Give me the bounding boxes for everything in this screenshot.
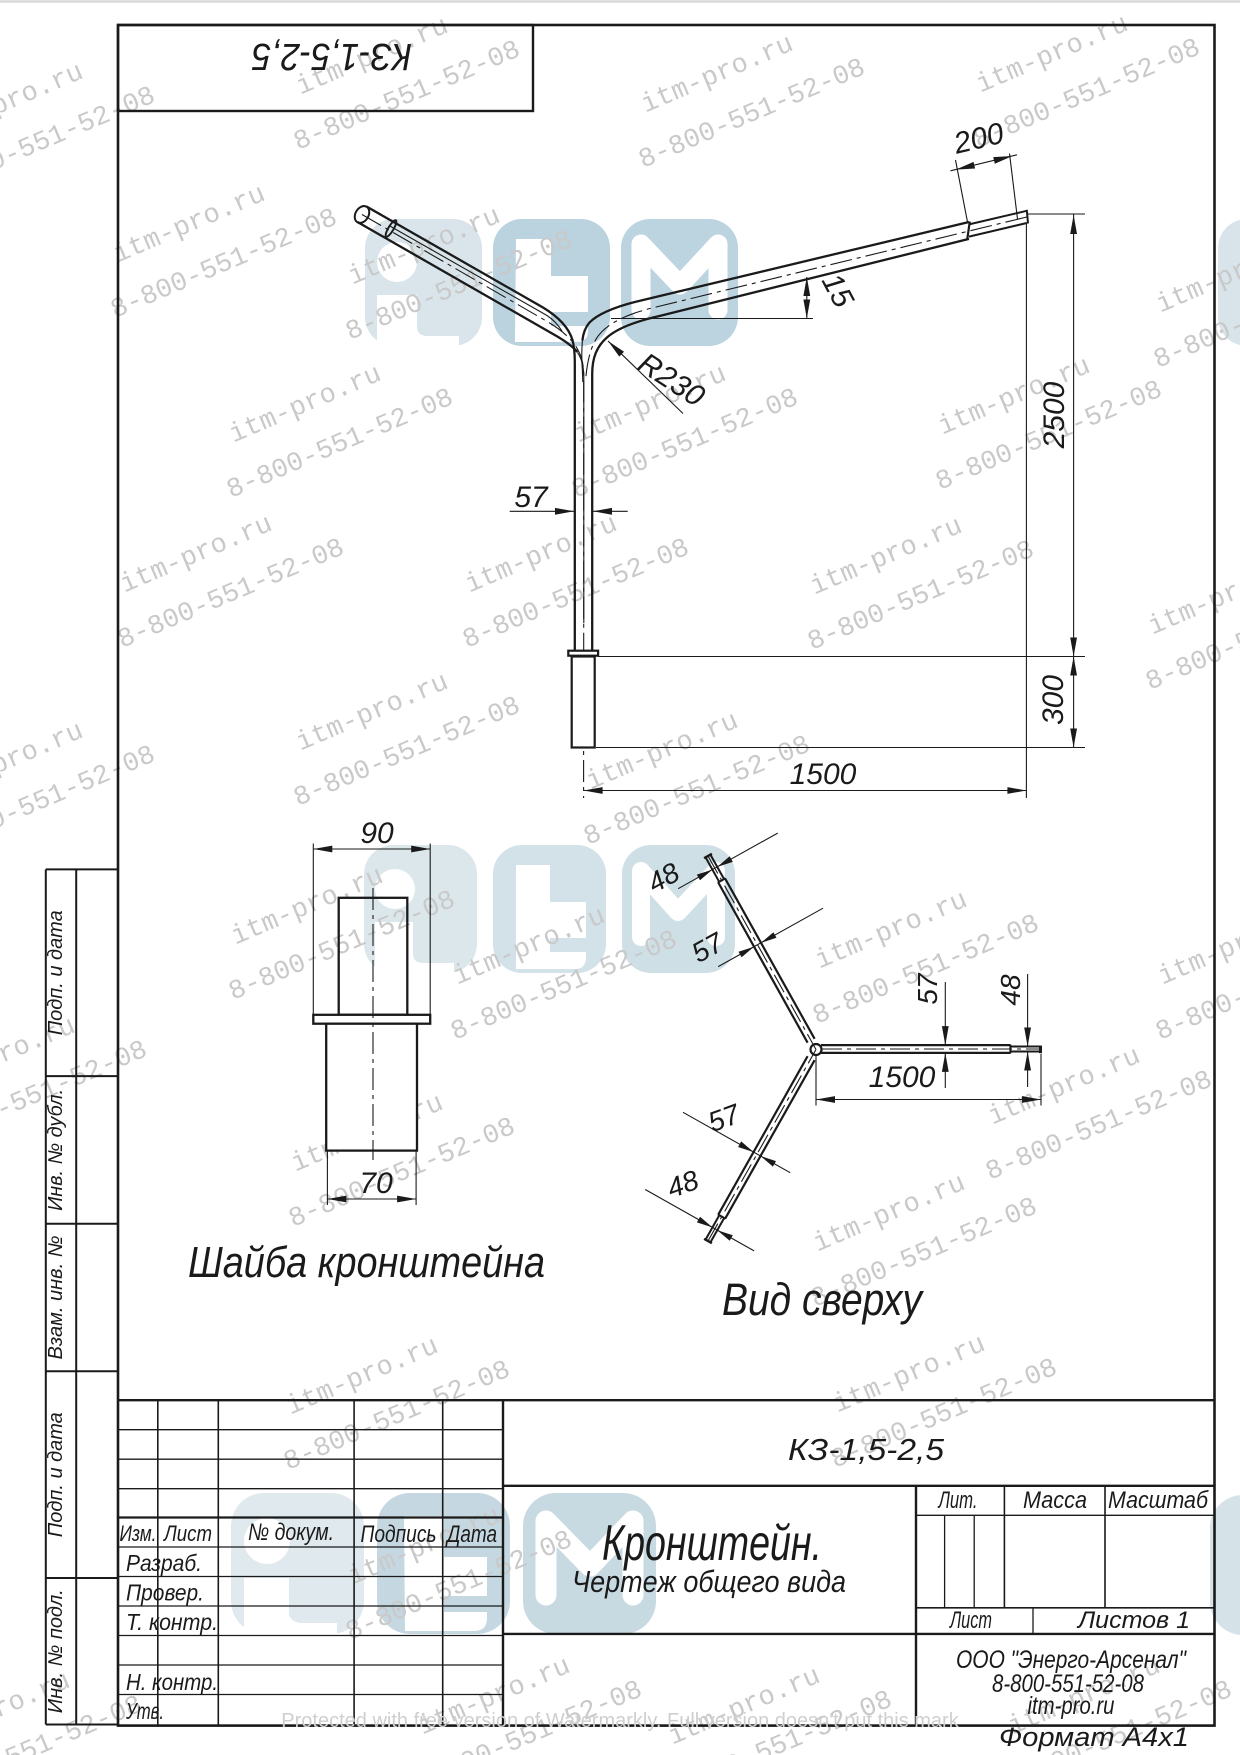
svg-text:Масштаб: Масштаб: [1108, 1487, 1209, 1514]
svg-text:Подпись: Подпись: [361, 1521, 437, 1548]
svg-text:2500: 2500: [1038, 381, 1071, 449]
svg-text:Формат А4х1: Формат А4х1: [999, 1722, 1189, 1752]
svg-text:1500: 1500: [790, 758, 857, 791]
svg-text:Инв. № подл.: Инв. № подл.: [45, 1589, 67, 1713]
svg-text:Подп. и дата: Подп. и дата: [45, 1412, 67, 1537]
svg-text:Шайба кронштейна: Шайба кронштейна: [188, 1238, 545, 1287]
svg-text:Protected with free version of: Protected with free version of Watermark…: [281, 1710, 959, 1732]
svg-text:Масса: Масса: [1023, 1487, 1087, 1514]
svg-text:Вид сверху: Вид сверху: [722, 1274, 924, 1325]
svg-text:Лист: Лист: [949, 1607, 992, 1634]
svg-text:57: 57: [912, 972, 943, 1005]
svg-text:Дата: Дата: [445, 1521, 497, 1548]
svg-text:70: 70: [359, 1167, 393, 1200]
svg-text:Лит.: Лит.: [937, 1487, 977, 1514]
svg-text:КЗ-1,5-2,5: КЗ-1,5-2,5: [788, 1432, 945, 1467]
svg-text:1500: 1500: [869, 1061, 936, 1094]
svg-text:57: 57: [514, 481, 549, 514]
svg-text:КЗ-1,5-2,5: КЗ-1,5-2,5: [251, 35, 412, 77]
svg-text:Подп. и дата: Подп. и дата: [45, 910, 67, 1035]
svg-text:Инв. № дубл.: Инв. № дубл.: [45, 1089, 67, 1211]
svg-text:Изм.: Изм.: [120, 1521, 157, 1546]
svg-text:Т. контр.: Т. контр.: [126, 1609, 218, 1635]
svg-text:Лист: Лист: [162, 1521, 212, 1546]
svg-text:Провер.: Провер.: [126, 1580, 204, 1606]
svg-text:Кронштейн.: Кронштейн.: [602, 1515, 822, 1571]
svg-text:Взам. инв. №: Взам. инв. №: [45, 1236, 67, 1360]
svg-text:Чертеж общего вида: Чертеж общего вида: [572, 1564, 846, 1599]
svg-text:№ докум.: № докум.: [248, 1519, 334, 1546]
svg-text:Разраб.: Разраб.: [126, 1550, 202, 1576]
svg-text:Утв.: Утв.: [125, 1698, 164, 1724]
svg-text:Н. контр.: Н. контр.: [126, 1669, 218, 1695]
svg-text:90: 90: [360, 817, 394, 850]
svg-text:300: 300: [1037, 675, 1070, 725]
svg-text:itm-pro.ru: itm-pro.ru: [1028, 1692, 1115, 1720]
svg-text:48: 48: [995, 974, 1026, 1006]
svg-text:Листов 1: Листов 1: [1076, 1607, 1190, 1634]
